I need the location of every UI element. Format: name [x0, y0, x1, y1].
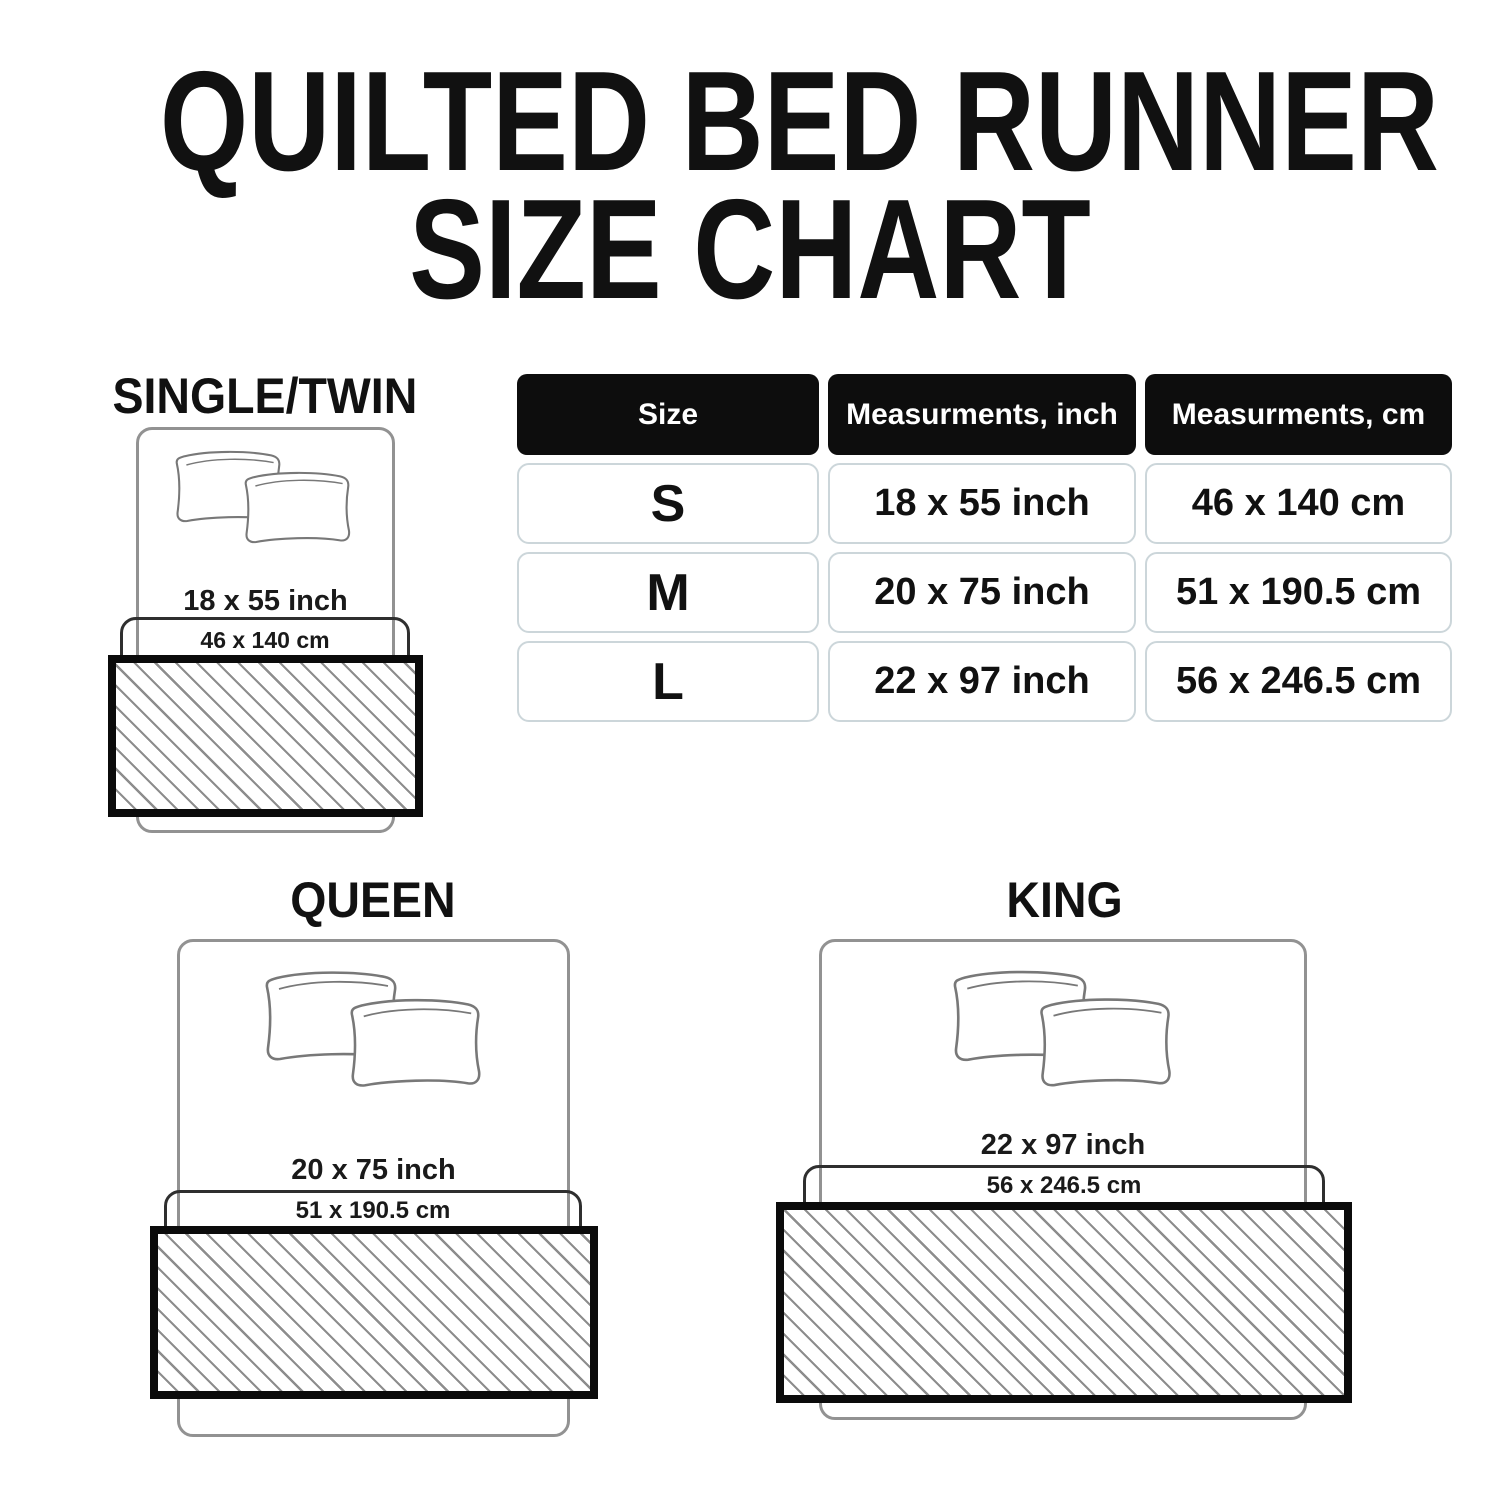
table-cell-size-s: S — [517, 463, 819, 544]
table-cell-size-l: L — [517, 641, 819, 722]
queen-inch-dimension: 20 x 75 inch — [177, 1153, 570, 1187]
single-twin-inch-dimension: 18 x 55 inch — [136, 584, 395, 618]
infographic-canvas: QUILTED BED RUNNER SIZE CHART SINGLE/TWI… — [0, 0, 1500, 1500]
single-twin-cm-dimension: 46 x 140 cm — [120, 626, 410, 654]
king-label: KING — [864, 874, 1264, 926]
queen-runner-hatched — [150, 1226, 598, 1399]
table-cell-inch-s: 18 x 55 inch — [828, 463, 1136, 544]
table-cell-cm-m: 51 x 190.5 cm — [1145, 552, 1452, 633]
page-title-line2: SIZE CHART — [0, 186, 1500, 314]
single-twin-label: SINGLE/TWIN — [60, 370, 470, 422]
pillow-icon — [346, 991, 484, 1091]
pillow-icon — [1035, 991, 1175, 1090]
single-twin-runner-hatched — [108, 655, 423, 817]
king-runner-hatched — [776, 1202, 1352, 1403]
king-inch-dimension: 22 x 97 inch — [819, 1128, 1307, 1162]
table-cell-inch-l: 22 x 97 inch — [828, 641, 1136, 722]
table-cell-cm-l: 56 x 246.5 cm — [1145, 641, 1452, 722]
table-header-inch: Measurments, inch — [828, 374, 1136, 455]
pillow-icon — [241, 465, 353, 547]
table-cell-inch-m: 20 x 75 inch — [828, 552, 1136, 633]
queen-cm-dimension: 51 x 190.5 cm — [164, 1197, 582, 1225]
table-header-cm: Measurments, cm — [1145, 374, 1452, 455]
size-table: Size Measurments, inch Measurments, cm S… — [517, 374, 1452, 722]
table-cell-size-m: M — [517, 552, 819, 633]
page-title-line1: QUILTED BED RUNNER — [0, 58, 1500, 186]
king-cm-dimension: 56 x 246.5 cm — [803, 1172, 1325, 1200]
table-header-size: Size — [517, 374, 819, 455]
table-cell-cm-s: 46 x 140 cm — [1145, 463, 1452, 544]
queen-label: QUEEN — [173, 874, 573, 926]
